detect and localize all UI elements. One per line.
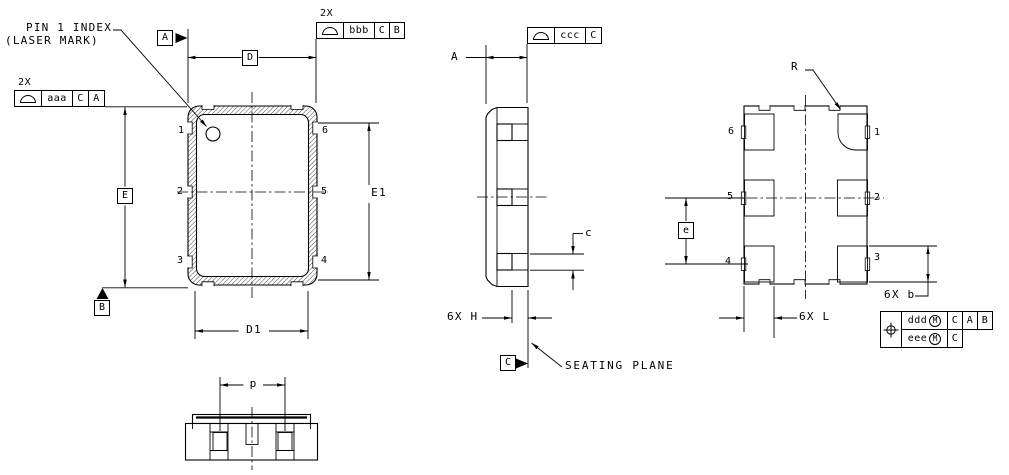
- front-pin-3: 3: [177, 255, 183, 266]
- fcf-aaa-datum-1: C: [73, 90, 89, 107]
- datum-b-triangle: [97, 288, 109, 299]
- dim-e-pitch-label: e: [678, 222, 694, 239]
- front-pin-4: 4: [321, 255, 327, 266]
- drawing-linework: [0, 0, 1009, 475]
- fcf-aaa-datum-2: A: [89, 90, 105, 107]
- dim-d-label: D: [242, 50, 258, 66]
- datum-c-flag: C: [500, 355, 516, 371]
- seating-plane-label: SEATING PLANE: [565, 360, 675, 372]
- fcf-position-row1-tol-text: ddd: [908, 315, 928, 326]
- front-pin-6: 6: [322, 125, 328, 136]
- front-pin-5: 5: [321, 186, 327, 197]
- fcf-bbb-datum-2: B: [390, 22, 405, 39]
- datum-b-flag: B: [94, 300, 110, 316]
- fcf-aaa: aaa C A: [14, 90, 105, 107]
- fcf-position-row1-tolerance: dddM: [901, 311, 948, 330]
- position-icon: [883, 322, 899, 338]
- front-view: [97, 29, 380, 339]
- fcf-position-row1-datum-1: C: [947, 311, 963, 330]
- mmc-modifier-icon: M: [929, 315, 941, 327]
- bottom-pin-1: 1: [874, 127, 880, 138]
- bottom-pin-6: 6: [728, 126, 734, 137]
- dim-l-label: 6X L: [799, 311, 830, 323]
- end-view: [186, 377, 318, 470]
- fcf-position-row1-datum-3: B: [977, 311, 993, 330]
- fcf-position-row2-tolerance: eeeM: [901, 329, 948, 348]
- dim-h-label: 6X H: [447, 311, 478, 323]
- fcf-bbb: bbb C B: [316, 22, 405, 39]
- bottom-pin-5: 5: [727, 191, 733, 202]
- fcf-position-row2-tol-text: eee: [908, 333, 928, 344]
- fcf-position-row2-datum-1: C: [947, 329, 963, 348]
- dim-p-label: p: [244, 378, 263, 390]
- dim-e1-label: E1: [366, 187, 392, 199]
- fcf-bbb-datum-1: C: [375, 22, 390, 39]
- fcf-ccc-datum-1: C: [586, 27, 602, 44]
- fcf-ccc-tolerance: ccc: [555, 27, 586, 44]
- bottom-pin-4: 4: [725, 256, 731, 267]
- side-view: [466, 44, 584, 369]
- pin1-index-label: PIN 1 INDEX: [26, 22, 112, 34]
- bottom-pin-3: 3: [874, 252, 880, 263]
- profile-surface-icon: [20, 95, 36, 103]
- datum-a-triangle: [176, 33, 188, 43]
- fcf-ccc: ccc C: [527, 27, 602, 44]
- fcf-position-row1-datum-2: A: [962, 311, 978, 330]
- fcf-bbb-tolerance: bbb: [344, 22, 375, 39]
- dim-b-label: 6X b: [884, 289, 915, 301]
- position-symbol-cell: [880, 311, 902, 348]
- profile-surface-icon: [322, 27, 338, 35]
- mechanical-drawing-canvas: PIN 1 INDEX (LASER MARK) 2X aaa C A 2X b…: [0, 0, 1009, 475]
- profile-surface-icon: [533, 32, 549, 40]
- dim-d1-label: D1: [239, 324, 269, 336]
- pin1-index-mark: [206, 127, 220, 141]
- laser-mark-label: (LASER MARK): [5, 35, 99, 47]
- datum-a-flag: A: [157, 30, 173, 46]
- fcf-aaa-qty: 2X: [18, 77, 31, 89]
- dim-c-label: c: [585, 227, 593, 239]
- fcf-bbb-qty: 2X: [320, 8, 333, 20]
- front-pin-1: 1: [178, 125, 184, 136]
- mmc-modifier-icon: M: [929, 333, 941, 345]
- dim-e-label: E: [117, 188, 133, 204]
- dim-a-label: A: [451, 51, 459, 63]
- fcf-aaa-tolerance: aaa: [42, 90, 73, 107]
- datum-c-triangle: [516, 359, 528, 369]
- bottom-pin-2: 2: [874, 192, 880, 203]
- radius-label: R: [791, 61, 799, 73]
- front-pin-2: 2: [177, 186, 183, 197]
